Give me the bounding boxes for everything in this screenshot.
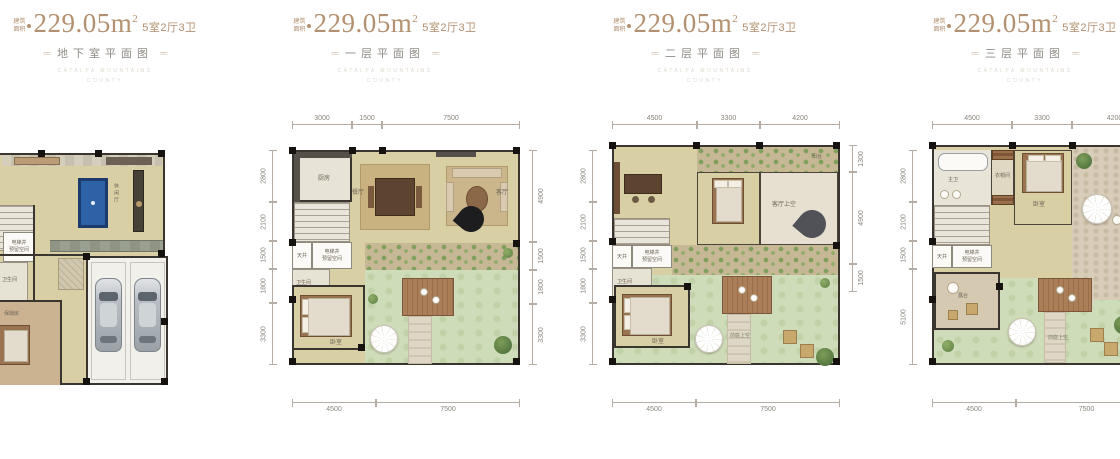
bed-mattress: [1026, 160, 1062, 192]
tree-icon: [1076, 153, 1092, 169]
wardrobe: [992, 195, 1014, 205]
wardrobe: [992, 150, 1014, 160]
area-row: 建筑 面积 229.05m2 5室2厅3卫: [933, 10, 1116, 37]
room-label-master-bath: 主卫: [948, 178, 958, 183]
umbrella-icon: [1008, 318, 1036, 346]
sink: [952, 190, 961, 199]
staircase: [934, 205, 990, 245]
outdoor-table: [1112, 215, 1120, 225]
room-label-front-void: 前庭上空: [1048, 336, 1068, 341]
area-label-line1: 建筑: [933, 18, 945, 26]
area-value: 229.05m2: [953, 10, 1058, 37]
wood-deck: [1038, 278, 1092, 312]
room-label-terrace: 露台: [958, 294, 968, 299]
outdoor-seat: [1090, 328, 1104, 342]
sink: [940, 190, 949, 199]
dim-label: 3300: [1012, 115, 1072, 122]
dim-label: 1500: [901, 247, 908, 263]
dim-label: 4500: [932, 406, 1016, 413]
watermark-line1: CATALPA MOUNTAINS: [978, 67, 1073, 77]
room-label-closet: 衣帽间: [995, 174, 1010, 179]
dim-label: 4500: [932, 115, 1012, 122]
flourish-icon: ≈≈: [971, 49, 978, 58]
dim-horizontal: 4200: [1072, 124, 1120, 125]
elevator-label-line1: 电梯井: [964, 250, 979, 257]
outdoor-seat: [966, 303, 978, 315]
bed-pillow: [1045, 155, 1061, 162]
area-unit: m: [1031, 8, 1053, 38]
watermark-line2: COUNTY: [978, 77, 1073, 87]
dot-icon: [947, 24, 951, 28]
terrace-box: [934, 272, 1000, 330]
column: [929, 142, 936, 149]
dim-label: 2800: [901, 168, 908, 184]
umbrella-icon: [1082, 194, 1112, 224]
outdoor-table: [1056, 286, 1064, 294]
column: [929, 296, 936, 303]
area-label-line2: 面积: [933, 26, 945, 34]
floor-title-row: ≈≈ 三层平面图 ≈≈: [971, 45, 1079, 61]
dim-vertical: 2100: [912, 202, 913, 241]
floor-title: 三层平面图: [985, 45, 1065, 61]
dim-label: 2100: [901, 214, 908, 230]
bathtub: [938, 153, 988, 171]
floorplan-sheet: 建筑 面积 229.05m2 5室2厅3卫 ≈≈ 地下室平面图 ≈≈ CATAL…: [0, 0, 1120, 459]
area-exponent: 2: [1052, 13, 1058, 25]
dim-vertical: 1500: [912, 241, 913, 269]
panel-header: 建筑 面积 229.05m2 5室2厅3卫 ≈≈ 三层平面图 ≈≈ CATALP…: [925, 10, 1120, 86]
column: [1069, 142, 1076, 149]
column: [929, 358, 936, 365]
area-number: 229.05: [953, 8, 1030, 38]
bed-pillow: [1028, 155, 1044, 162]
light-well: 天井: [932, 245, 952, 268]
elevator-label-line2: 预留空间: [962, 257, 982, 264]
room-label-bedroom: 卧室: [1033, 202, 1045, 208]
room-label-lightwell: 天井: [937, 253, 947, 260]
dim-horizontal: 4500: [932, 402, 1016, 403]
area-label: 建筑 面积: [933, 18, 945, 34]
bush-icon: [942, 340, 954, 352]
outdoor-seat: [1104, 342, 1118, 356]
room-spec: 5室2厅3卫: [1062, 19, 1116, 35]
dim-horizontal: 3300: [1012, 124, 1072, 125]
dim-horizontal: 4500: [932, 124, 1012, 125]
column: [996, 283, 1003, 290]
dim-horizontal: 7500: [1016, 402, 1120, 403]
dim-label: 7500: [1016, 406, 1120, 413]
outdoor-table: [1068, 294, 1076, 302]
outdoor-seat: [948, 310, 958, 320]
dim-label: 5100: [901, 309, 908, 325]
watermark: CATALPA MOUNTAINS COUNTY: [978, 67, 1073, 86]
panel-third-floor: 建筑 面积 229.05m2 5室2厅3卫 ≈≈ 三层平面图 ≈≈ CATALP…: [0, 0, 1120, 459]
column: [1009, 142, 1016, 149]
column: [929, 238, 936, 245]
elevator-shaft: 电梯井 预留空间: [952, 245, 992, 268]
dim-vertical: 2800: [912, 150, 913, 202]
dim-label: 4200: [1072, 115, 1120, 122]
flourish-icon: ≈≈: [1072, 49, 1079, 58]
dim-vertical: 5100: [912, 269, 913, 365]
